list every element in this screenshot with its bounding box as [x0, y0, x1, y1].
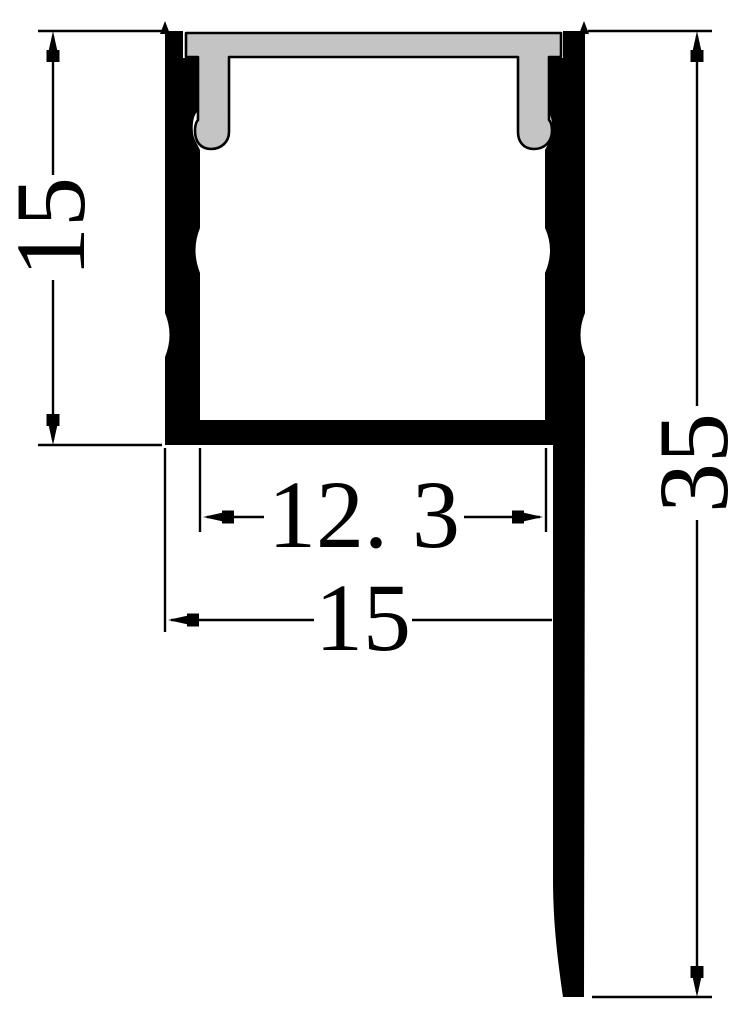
arrowhead-icon: [47, 31, 60, 62]
dimension-label-outer-width: 15: [315, 570, 411, 666]
arrowhead-icon: [47, 414, 60, 445]
arrowhead-icon: [691, 966, 704, 997]
wall-top-tick-icon: [579, 21, 589, 34]
dimension-overall-height: [588, 31, 712, 997]
technical-drawing-canvas: 15 35 12. 3 15: [0, 0, 749, 1024]
dimension-label-channel-height: 15: [1, 177, 101, 277]
arrowhead-icon: [203, 511, 234, 524]
diffuser-cover-shape: [186, 33, 561, 149]
arrowhead-icon: [168, 614, 199, 627]
arrowhead-icon: [691, 31, 704, 62]
arrowhead-icon: [512, 511, 543, 524]
dimension-label-inner-width: 12. 3: [268, 467, 460, 563]
dimension-label-overall-height: 35: [644, 413, 744, 513]
